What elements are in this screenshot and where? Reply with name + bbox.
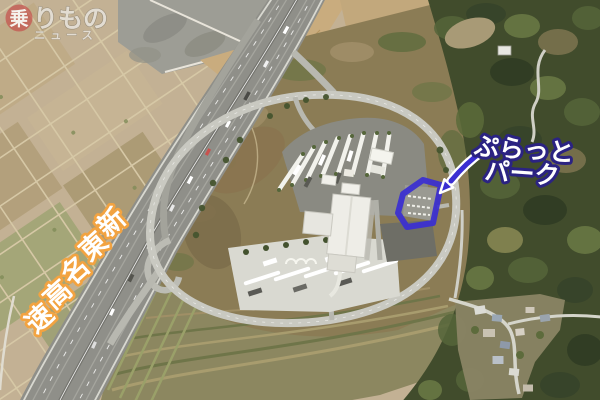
annotated-aerial-image: ぷらっと パーク 新 東 名 高 速 乗 りもの ニュース bbox=[0, 0, 600, 400]
watermark-subtitle: ニュース bbox=[34, 28, 97, 42]
watermark-badge-char: 乗 bbox=[9, 8, 28, 30]
south-parking bbox=[228, 236, 400, 312]
aerial-scene: ぷらっと パーク 新 東 名 高 速 乗 りもの ニュース bbox=[0, 0, 600, 400]
park-label-line2: パーク bbox=[484, 156, 561, 190]
